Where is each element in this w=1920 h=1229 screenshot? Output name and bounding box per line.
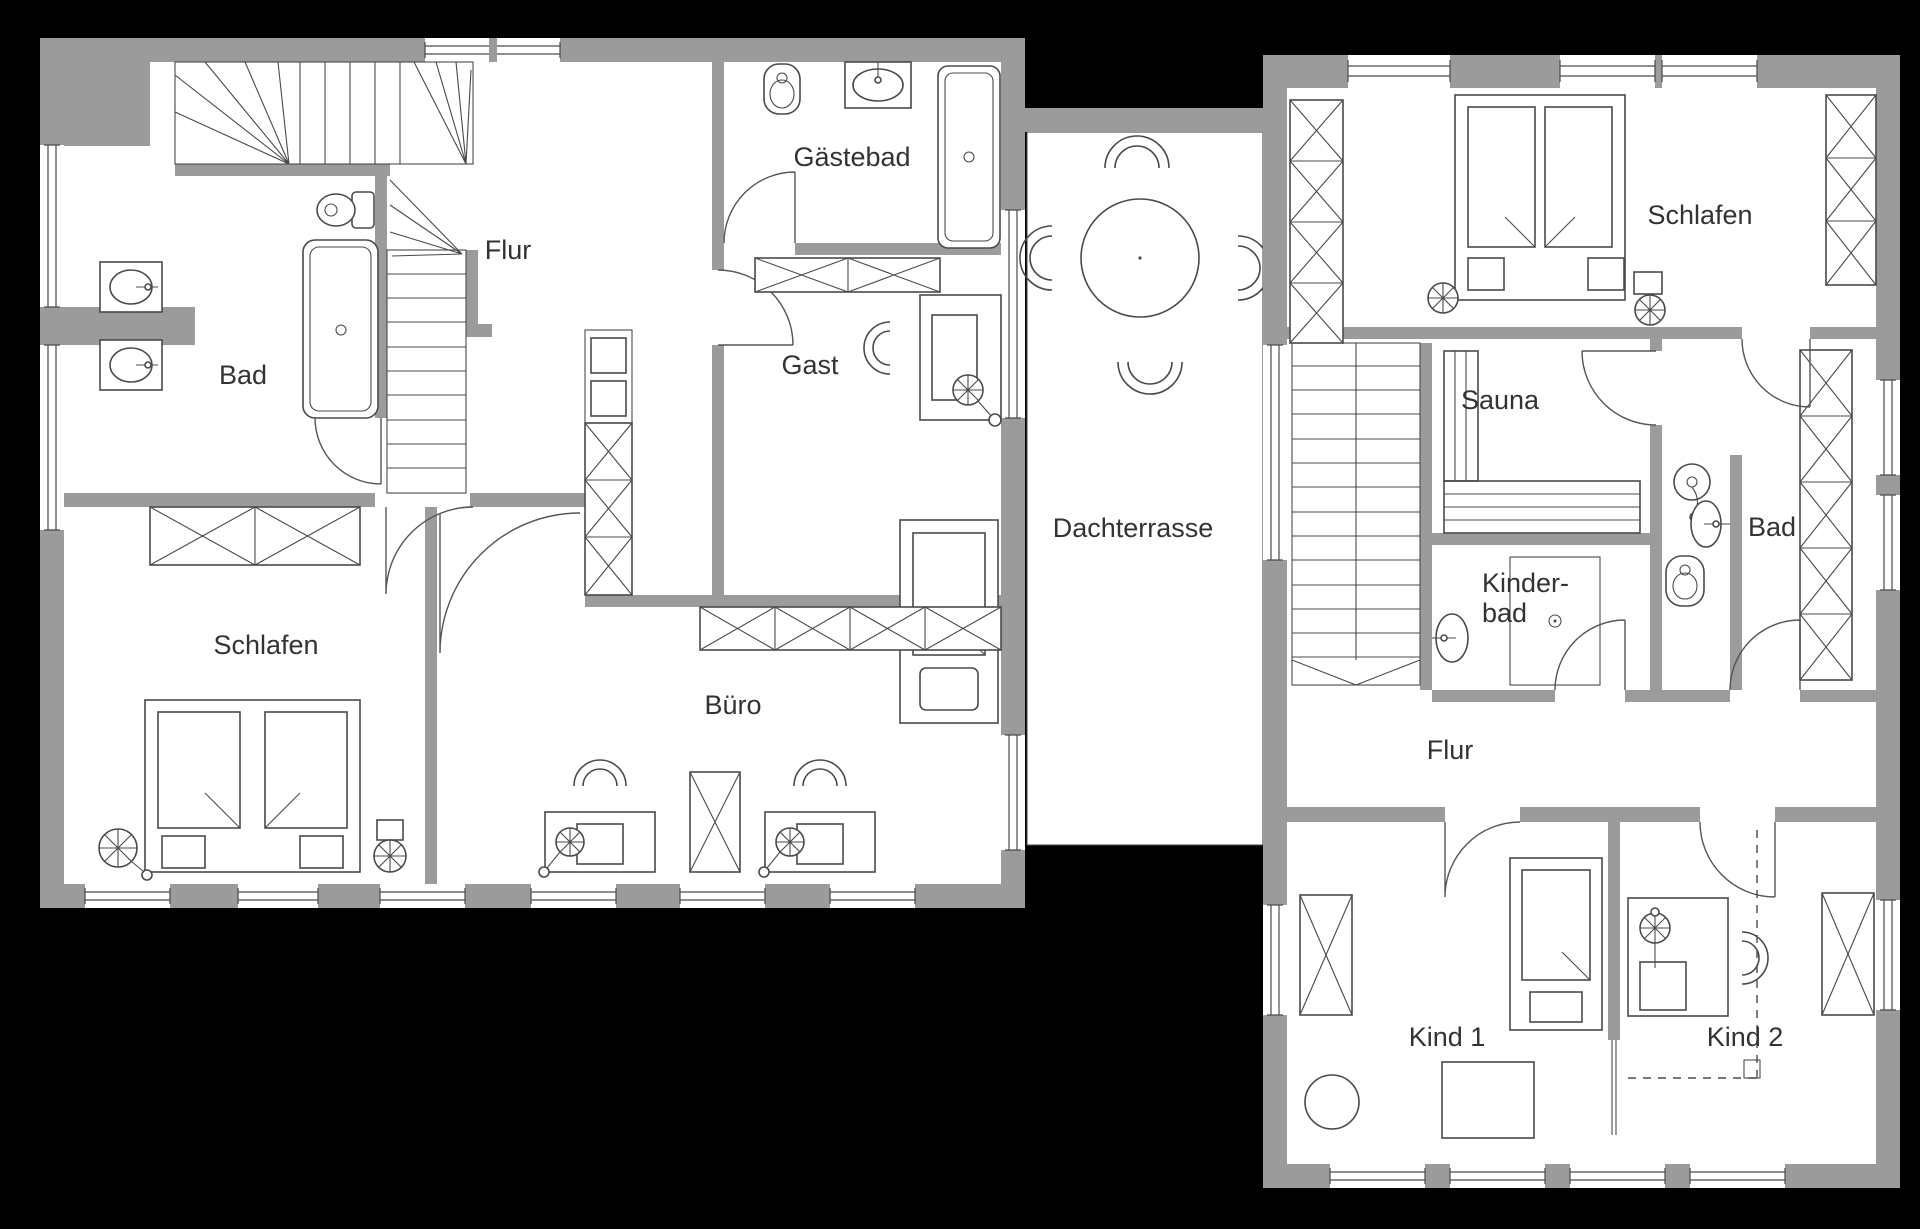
floor-plan-page: Flur Bad Gästebad Gast Schlafen Büro — [0, 0, 1920, 1229]
room-label-flur-right: Flur — [1427, 735, 1474, 765]
room-label-schlafen-right: Schlafen — [1647, 200, 1752, 230]
window-left-lower — [1263, 905, 1287, 1015]
roof-terrace: Dachterrasse — [1005, 108, 1292, 845]
room-label-buero: Büro — [704, 690, 761, 720]
wardrobe-icon — [755, 258, 940, 292]
room-label-sauna: Sauna — [1461, 385, 1540, 415]
toilet-icon — [1666, 556, 1704, 606]
room-label-kind2: Kind 2 — [1707, 1022, 1784, 1052]
sink-icon — [100, 340, 162, 390]
room-label-gast: Gast — [781, 350, 839, 380]
room-label-schlafen-left: Schlafen — [213, 630, 318, 660]
wardrobe-icon — [150, 507, 360, 565]
wardrobe-icon — [700, 607, 1001, 650]
toilet-icon — [764, 64, 800, 114]
window-terrace-door — [1263, 345, 1287, 560]
window-left-1 — [40, 145, 64, 307]
room-label-flur-left: Flur — [485, 235, 532, 265]
room-label-gaestebad: Gästebad — [793, 142, 910, 172]
room-label-bad-left: Bad — [219, 360, 267, 390]
single-bed-icon — [1510, 858, 1602, 1030]
window-top — [425, 38, 560, 62]
room-label-kind1: Kind 1 — [1409, 1022, 1486, 1052]
right-building: Schlafen Sauna Bad Kinder- bad Flur Kind… — [1263, 55, 1900, 1188]
bathtub-icon — [303, 240, 378, 418]
window-right-1 — [1001, 210, 1025, 418]
room-label-kinderbad-line1: Kinder- — [1482, 568, 1569, 598]
double-bed-icon — [145, 700, 360, 872]
room-label-kinderbad-line2: bad — [1482, 598, 1527, 628]
wardrobe-icon — [1300, 895, 1352, 1015]
sink-icon — [845, 62, 911, 108]
sliding-door — [1609, 1040, 1619, 1135]
room-label-dachterrasse: Dachterrasse — [1053, 513, 1214, 543]
window-right-2 — [1001, 735, 1025, 850]
wardrobe-icon — [1290, 100, 1343, 343]
sink-icon — [100, 262, 162, 312]
lamp-icon — [1428, 283, 1458, 313]
toilet-icon — [317, 192, 374, 228]
wardrobe-icon — [1800, 350, 1852, 680]
room-label-bad-right: Bad — [1748, 512, 1796, 542]
floor-plan-canvas: Flur Bad Gästebad Gast Schlafen Büro — [0, 0, 1920, 1229]
wardrobe-icon — [1826, 95, 1876, 285]
wardrobe-icon — [1822, 893, 1874, 1015]
bathtub-icon — [938, 66, 1000, 248]
cabinet-icon — [690, 772, 740, 872]
desk-icon — [1628, 898, 1728, 1016]
left-building: Flur Bad Gästebad Gast Schlafen Büro — [40, 38, 1025, 908]
window-left-2 — [40, 345, 64, 530]
double-bed-icon — [1455, 95, 1625, 300]
